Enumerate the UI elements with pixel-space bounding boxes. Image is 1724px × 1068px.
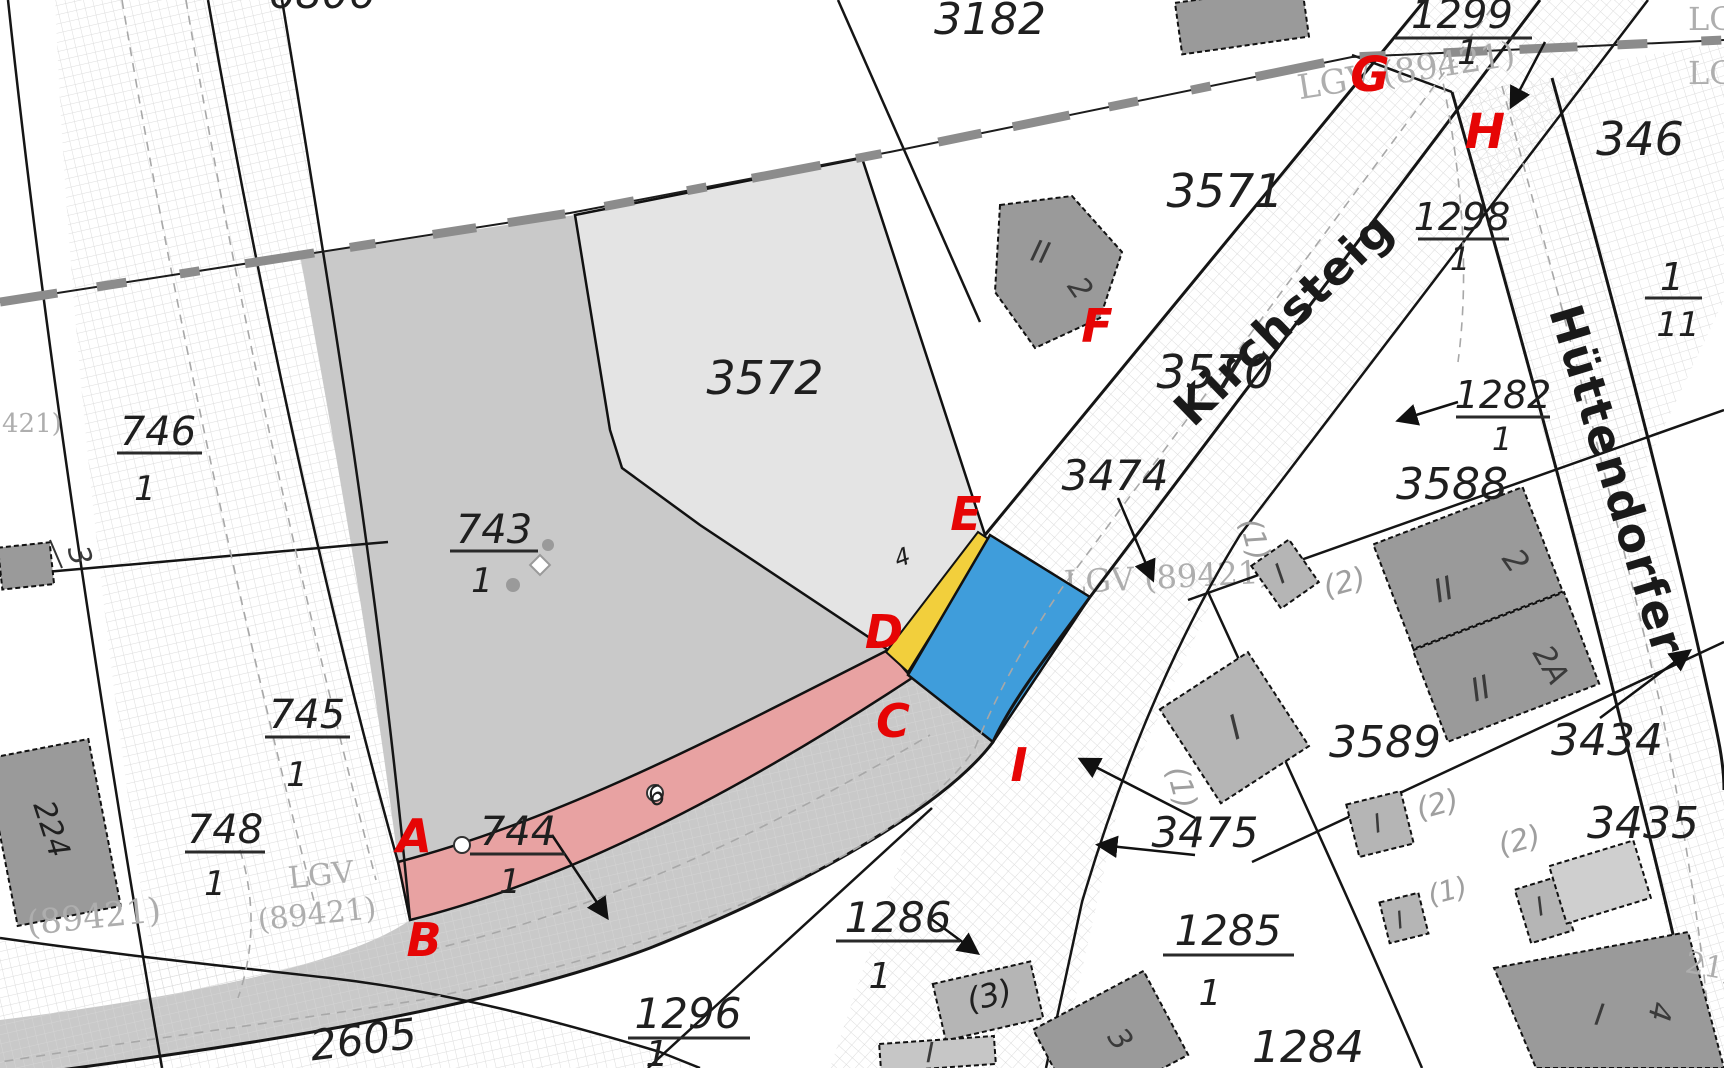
fraction-746-den: 1 [134, 469, 156, 509]
fraction-743-den: 1 [471, 561, 493, 601]
parcel-6806: 6806 [269, 0, 376, 18]
parcel-3588: 3588 [1396, 459, 1508, 510]
fraction-1282-num: 1282 [1455, 373, 1552, 417]
lg-edge-1: LG [1688, 0, 1724, 38]
fraction-1285-1: 1285 1 [1163, 906, 1294, 1014]
fraction-1296-den: 1 [646, 1034, 669, 1068]
building-3589-b [1380, 893, 1429, 943]
parcel-3572: 3572 [706, 351, 823, 405]
parcel-3435: 3435 [1587, 798, 1699, 849]
fraction-1299-den: 1 [1457, 33, 1479, 73]
fraction-745-den: 1 [286, 755, 308, 795]
lg-edge-2: LG [1688, 54, 1724, 92]
red-mark-C: C [876, 694, 910, 748]
parcel-3475: 3475 [1152, 808, 1259, 857]
fraction-1298-den: 1 [1450, 240, 1470, 278]
fraction-1298-num: 1298 [1414, 195, 1511, 239]
fraction-1282-1: 1282 1 [1455, 373, 1552, 458]
fraction-1296-1: 1296 1 [628, 989, 750, 1068]
fraction-1286-num: 1286 [845, 893, 952, 942]
red-mark-F: F [1081, 299, 1112, 353]
fraction-1-11-den: 11 [1656, 305, 1699, 345]
building-3435-b [1549, 840, 1651, 923]
red-mark-A: A [393, 809, 432, 863]
fraction-744-den: 1 [499, 862, 521, 902]
parcel-3434: 3434 [1551, 715, 1663, 766]
fraction-743-num: 743 [456, 507, 532, 553]
building-top-edge [1175, 0, 1309, 54]
fraction-1286-den: 1 [869, 956, 892, 997]
ghost-label-1c: (1) [1424, 870, 1471, 912]
lgv-partial-left: 421) [2, 409, 62, 439]
parcel-3571: 3571 [1166, 164, 1283, 218]
building-left-edge [0, 542, 54, 589]
red-mark-B: B [406, 913, 441, 967]
fraction-1296-num: 1296 [635, 989, 742, 1038]
building-label-i-1296: I [926, 1036, 934, 1068]
lgv-748-word: LGV [287, 855, 357, 897]
red-mark-D: D [865, 605, 903, 659]
cadastral-map: LGV (89421) [0, 0, 1724, 1068]
fraction-745-num: 745 [269, 692, 345, 738]
parcel-1284: 1284 [1252, 1022, 1364, 1068]
ghost-label-2a: (2) [1319, 560, 1369, 605]
red-mark-I: I [1010, 738, 1027, 792]
parcel-3474: 3474 [1062, 451, 1169, 500]
red-mark-H: H [1465, 104, 1505, 160]
ghost-label-1b: (1) [1159, 762, 1204, 812]
survey-point-1 [454, 837, 470, 853]
fraction-1-11-num: 1 [1660, 255, 1684, 299]
cadastral-map-page: LGV (89421) [0, 0, 1724, 1068]
ghost-label-2c: (2) [1494, 818, 1544, 863]
ghost-label-2b: (2) [1412, 782, 1462, 827]
parcel-3589: 3589 [1329, 717, 1441, 768]
red-mark-E: E [950, 487, 981, 541]
fraction-748-den: 1 [204, 864, 226, 904]
parcel-3182: 3182 [934, 0, 1046, 45]
parcel-3570: 3570 [1156, 345, 1273, 399]
house-number-3-left: 3 [60, 542, 99, 570]
symbol-dot-743-b [542, 539, 554, 551]
fraction-1282-den: 1 [1492, 420, 1512, 458]
fraction-746-num: 746 [120, 409, 196, 455]
red-mark-G: G [1350, 47, 1389, 103]
fraction-748-num: 748 [187, 807, 263, 853]
arrow-1282 [1400, 402, 1458, 420]
fraction-1285-num: 1285 [1175, 906, 1282, 955]
parcel-346: 346 [1596, 112, 1684, 166]
symbol-dot-743-a [506, 578, 520, 592]
fraction-1285-den: 1 [1199, 973, 1222, 1014]
fraction-744-num: 744 [480, 809, 556, 855]
